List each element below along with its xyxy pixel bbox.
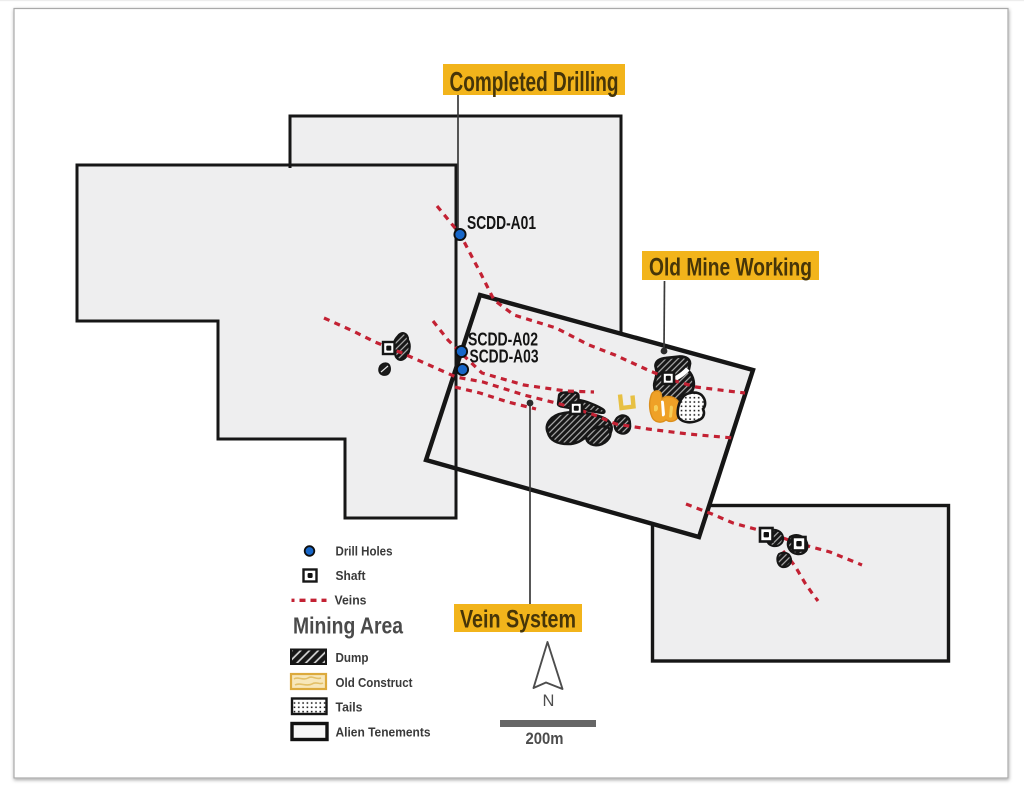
svg-text:Tails: Tails bbox=[336, 700, 363, 715]
svg-text:Alien Tenements: Alien Tenements bbox=[336, 725, 431, 740]
svg-text:Old Construct: Old Construct bbox=[336, 675, 414, 690]
svg-text:Drill Holes: Drill Holes bbox=[336, 544, 393, 559]
svg-text:Shaft: Shaft bbox=[336, 568, 367, 583]
svg-text:SCDD-A03: SCDD-A03 bbox=[470, 347, 539, 367]
svg-text:Old Mine Working: Old Mine Working bbox=[649, 254, 812, 282]
svg-text:Dump: Dump bbox=[336, 650, 369, 665]
svg-text:Completed Drilling: Completed Drilling bbox=[450, 66, 619, 97]
svg-text:Mining Area: Mining Area bbox=[293, 613, 404, 639]
svg-text:Vein System: Vein System bbox=[460, 606, 576, 634]
svg-text:SCDD-A01: SCDD-A01 bbox=[467, 213, 536, 233]
svg-text:N: N bbox=[543, 692, 555, 710]
svg-text:200m: 200m bbox=[526, 730, 564, 748]
svg-text:Veins: Veins bbox=[335, 593, 367, 608]
